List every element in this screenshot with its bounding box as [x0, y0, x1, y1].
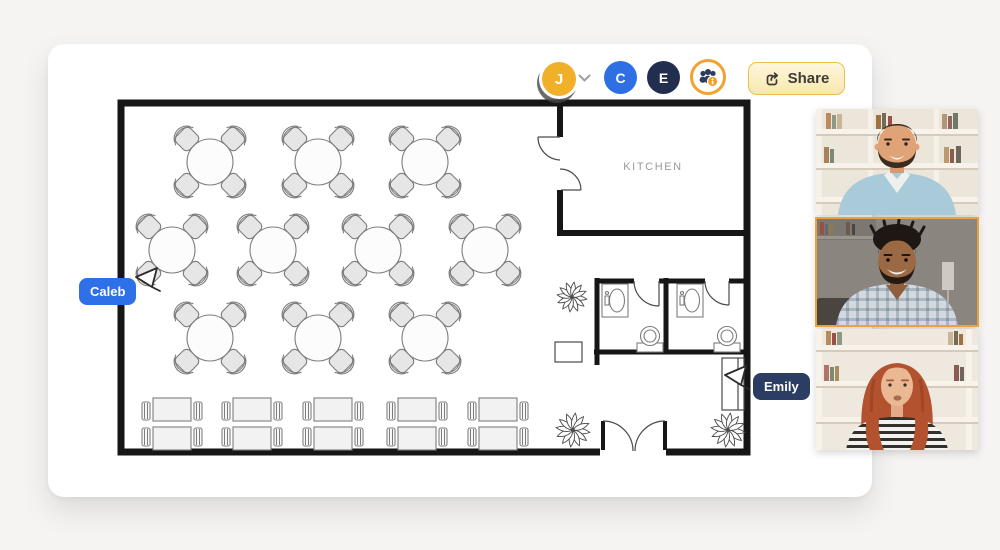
page-background: KITCHEN J C E Share CalebEmily [0, 0, 1000, 550]
round-table[interactable] [444, 209, 526, 291]
share-icon [764, 70, 781, 87]
avatar-e[interactable]: E [647, 61, 680, 94]
kitchen-room-label: KITCHEN [623, 161, 682, 173]
booth-table[interactable] [303, 398, 363, 450]
participant-1-portrait [816, 109, 978, 215]
cursor-arrow-caleb [133, 264, 163, 294]
video-call-strip [816, 109, 978, 453]
sink[interactable] [602, 284, 628, 317]
collaborators-button[interactable] [690, 59, 726, 95]
video-tile-participant-2-active[interactable] [816, 218, 978, 326]
cursor-arrow-emily [722, 362, 752, 392]
booth-table[interactable] [387, 398, 447, 450]
people-info-icon [697, 66, 719, 88]
chevron-down-icon[interactable] [578, 74, 591, 83]
share-button[interactable]: Share [748, 62, 845, 95]
video-tile-participant-1[interactable] [816, 109, 978, 215]
round-table[interactable] [232, 209, 314, 291]
video-tile-participant-3[interactable] [816, 329, 978, 450]
toilet[interactable] [714, 327, 740, 353]
round-table[interactable] [384, 297, 466, 379]
participant-2-portrait [816, 218, 978, 326]
cursor-label-emily: Emily [753, 373, 810, 400]
cursor-label-caleb: Caleb [79, 278, 136, 305]
avatar-c[interactable]: C [604, 61, 637, 94]
booth-table[interactable] [222, 398, 282, 450]
share-button-label: Share [788, 70, 830, 87]
round-table[interactable] [277, 121, 359, 203]
round-table[interactable] [169, 121, 251, 203]
round-table[interactable] [169, 297, 251, 379]
round-table[interactable] [337, 209, 419, 291]
participant-3-portrait [816, 329, 978, 450]
booth-table[interactable] [468, 398, 528, 450]
round-table[interactable] [384, 121, 466, 203]
booth-table[interactable] [142, 398, 202, 450]
toilet[interactable] [637, 327, 663, 353]
plant[interactable] [556, 413, 590, 447]
sink[interactable] [677, 284, 703, 317]
plant[interactable] [557, 282, 587, 312]
plant[interactable] [711, 413, 745, 447]
avatar-j[interactable]: J [539, 59, 579, 99]
round-table[interactable] [277, 297, 359, 379]
